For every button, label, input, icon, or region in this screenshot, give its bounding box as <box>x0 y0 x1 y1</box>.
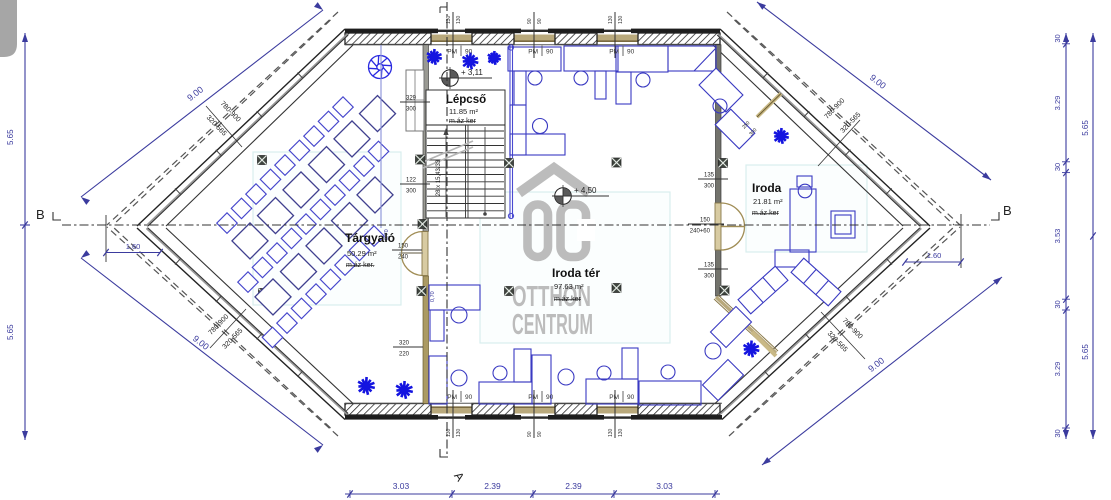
svg-text:90: 90 <box>627 394 635 401</box>
svg-text:130: 130 <box>618 428 624 437</box>
svg-text:300: 300 <box>406 107 417 113</box>
svg-text:90: 90 <box>527 431 533 437</box>
svg-text:150: 150 <box>700 218 711 224</box>
svg-text:329: 329 <box>406 96 417 102</box>
svg-text:PM: PM <box>528 394 538 401</box>
svg-text:150: 150 <box>398 244 409 250</box>
svg-text:PM: PM <box>447 49 457 56</box>
svg-text:90: 90 <box>546 394 554 401</box>
svg-text:PM: PM <box>609 49 619 56</box>
svg-text:PM: PM <box>447 394 457 401</box>
svg-text:+ 3,11: + 3,11 <box>461 68 483 77</box>
svg-text:130: 130 <box>446 15 452 24</box>
svg-text:30: 30 <box>1053 34 1062 42</box>
svg-text:Iroda: Iroda <box>752 181 782 195</box>
svg-text:Tárgyaló: Tárgyaló <box>345 231 395 245</box>
svg-text:0,70: 0,70 <box>430 291 436 302</box>
svg-text:3.29: 3.29 <box>1053 96 1062 111</box>
svg-text:90: 90 <box>546 49 554 56</box>
svg-text:PM: PM <box>609 394 619 401</box>
svg-text:B: B <box>1003 203 1012 218</box>
svg-text:m.áz ker.: m.áz ker. <box>346 262 374 269</box>
svg-text:130: 130 <box>456 428 462 437</box>
svg-text:+ 4,50: + 4,50 <box>574 186 597 195</box>
svg-text:90: 90 <box>465 394 473 401</box>
svg-text:135: 135 <box>704 263 715 269</box>
svg-text:97.63 m²: 97.63 m² <box>554 282 584 291</box>
svg-text:130: 130 <box>618 15 624 24</box>
svg-text:122: 122 <box>406 178 417 184</box>
svg-text:2.39: 2.39 <box>565 481 582 491</box>
svg-text:300: 300 <box>704 184 715 190</box>
svg-text:130: 130 <box>446 428 452 437</box>
svg-text:Iroda tér: Iroda tér <box>552 266 600 280</box>
svg-text:90: 90 <box>465 49 473 56</box>
svg-text:1.60: 1.60 <box>927 251 942 260</box>
svg-text:130: 130 <box>608 428 614 437</box>
svg-text:5.65: 5.65 <box>1081 344 1090 360</box>
svg-text:CENTRUM: CENTRUM <box>512 309 593 341</box>
svg-text:1.60: 1.60 <box>126 242 141 251</box>
svg-text:5.65: 5.65 <box>1081 120 1090 136</box>
svg-text:300: 300 <box>406 189 417 195</box>
svg-text:90: 90 <box>537 431 543 437</box>
svg-text:220: 220 <box>399 352 410 358</box>
svg-text:30: 30 <box>1053 429 1062 437</box>
svg-text:50.29 m²: 50.29 m² <box>347 249 377 258</box>
svg-text:90: 90 <box>527 18 533 24</box>
svg-text:3.03: 3.03 <box>393 481 410 491</box>
svg-text:m.áz.ker: m.áz.ker <box>554 296 582 303</box>
svg-text:11.85 m²: 11.85 m² <box>449 107 479 116</box>
svg-text:m.áz ker: m.áz ker <box>449 118 477 125</box>
svg-text:3.53: 3.53 <box>1053 229 1062 244</box>
svg-text:320: 320 <box>399 341 410 347</box>
svg-text:28 x 15,43/33: 28 x 15,43/33 <box>436 159 442 196</box>
svg-text:Lépcső: Lépcső <box>446 94 486 106</box>
svg-text:130: 130 <box>456 15 462 24</box>
svg-text:300: 300 <box>704 274 715 280</box>
svg-text:30: 30 <box>1053 163 1062 171</box>
svg-text:5.65: 5.65 <box>6 324 15 340</box>
svg-text:PM: PM <box>528 49 538 56</box>
svg-text:240+60: 240+60 <box>690 229 711 235</box>
svg-text:3.03: 3.03 <box>656 481 673 491</box>
svg-text:240: 240 <box>398 255 409 261</box>
svg-text:5.65: 5.65 <box>6 129 15 145</box>
svg-text:30: 30 <box>1053 300 1062 308</box>
svg-text:90: 90 <box>627 49 635 56</box>
svg-text:m.áz.ker: m.áz.ker <box>752 210 780 217</box>
svg-text:2.39: 2.39 <box>484 481 501 491</box>
svg-text:90: 90 <box>537 18 543 24</box>
svg-text:130: 130 <box>608 15 614 24</box>
svg-text:21.81 m²: 21.81 m² <box>753 197 783 206</box>
svg-text:B: B <box>36 207 45 222</box>
svg-text:135: 135 <box>704 173 715 179</box>
svg-text:3.29: 3.29 <box>1053 362 1062 377</box>
